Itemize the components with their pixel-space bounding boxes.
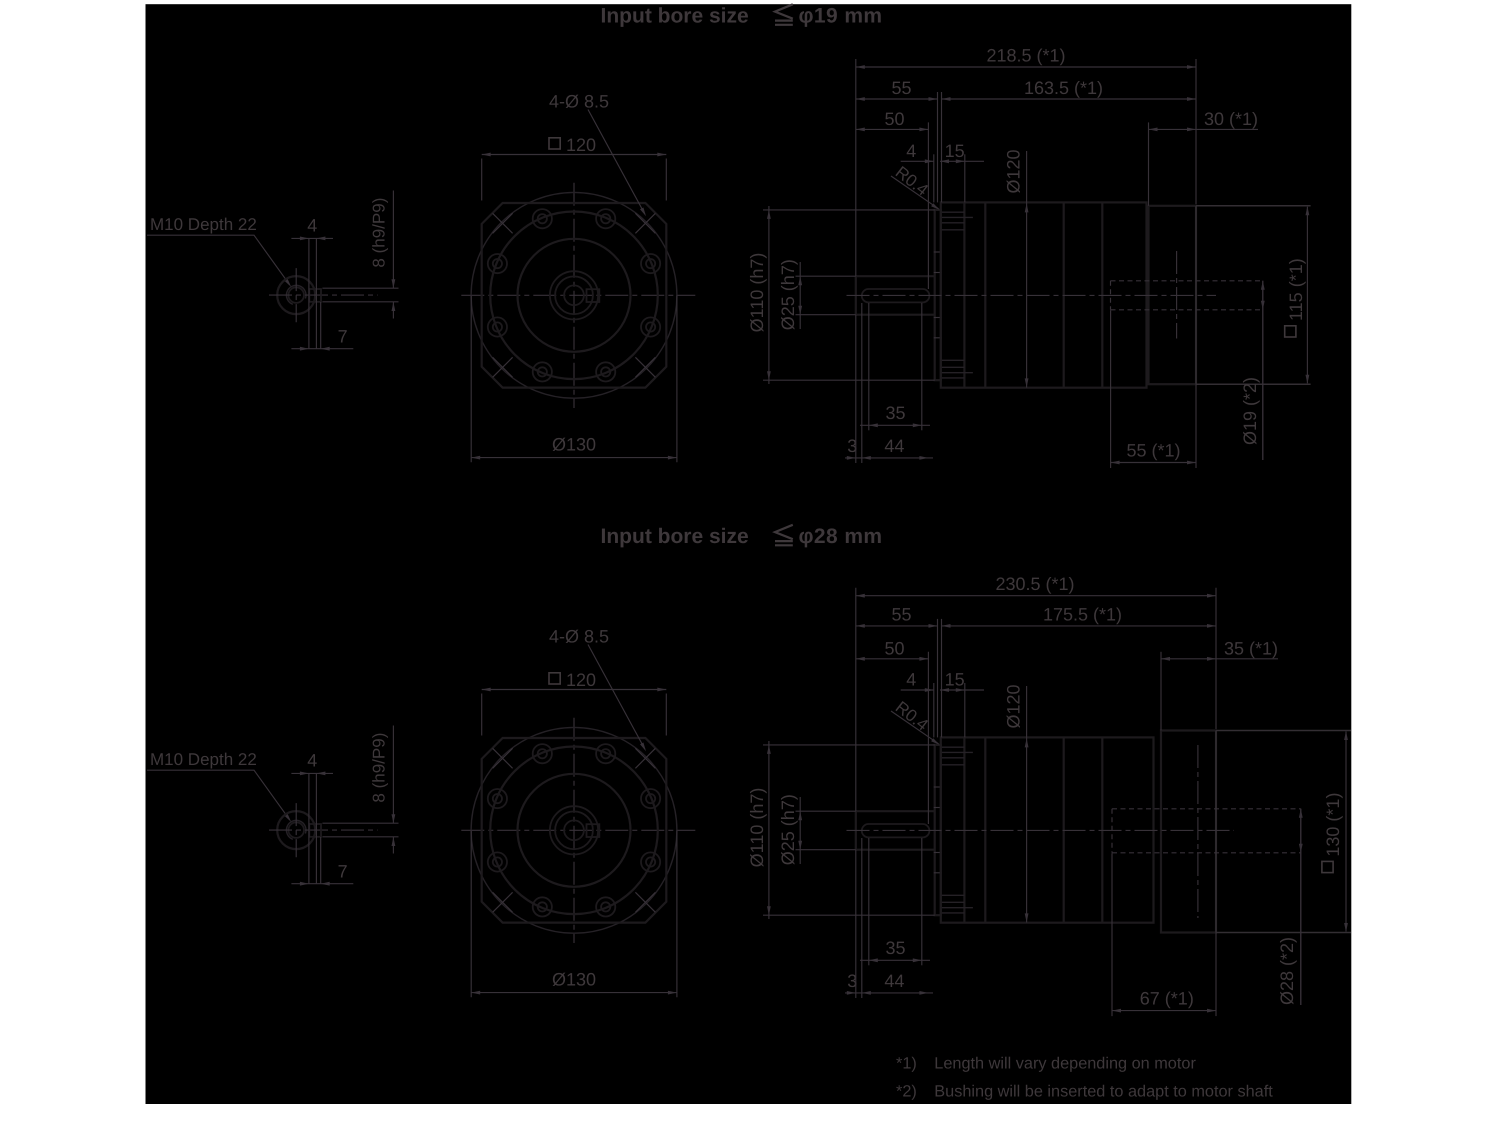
svg-text:Ø130: Ø130	[552, 435, 596, 455]
svg-text:Ø120: Ø120	[1003, 149, 1023, 193]
svg-text:Input bore size: Input bore size	[601, 525, 749, 548]
svg-text:Ø110 (h7): Ø110 (h7)	[747, 253, 767, 333]
svg-text:55: 55	[891, 78, 911, 98]
svg-text:35 (*1): 35 (*1)	[1224, 639, 1278, 659]
svg-text:M10 Depth 22: M10 Depth 22	[150, 215, 257, 234]
svg-text:44: 44	[884, 971, 904, 991]
svg-text:4: 4	[307, 751, 317, 771]
svg-text:55: 55	[891, 605, 911, 625]
svg-text:30 (*1): 30 (*1)	[1204, 109, 1258, 129]
svg-text:230.5 (*1): 230.5 (*1)	[995, 574, 1074, 594]
svg-text:Input bore size: Input bore size	[601, 5, 749, 28]
svg-text:4: 4	[906, 141, 916, 161]
svg-text:*2): *2)	[896, 1083, 917, 1101]
svg-text:Ø25 (h7): Ø25 (h7)	[778, 259, 798, 330]
svg-text:Ø130: Ø130	[552, 970, 596, 990]
svg-text:120: 120	[566, 135, 596, 155]
svg-text:35: 35	[885, 938, 905, 958]
svg-text:55 (*1): 55 (*1)	[1126, 441, 1180, 461]
svg-text:φ28 mm: φ28 mm	[799, 525, 883, 548]
svg-text:Ø120: Ø120	[1003, 684, 1023, 728]
svg-text:50: 50	[884, 639, 904, 659]
svg-text:50: 50	[884, 109, 904, 129]
svg-text:4-Ø 8.5: 4-Ø 8.5	[549, 626, 609, 646]
svg-text:M10 Depth 22: M10 Depth 22	[150, 750, 257, 769]
svg-text:7: 7	[338, 327, 348, 347]
svg-text:φ19 mm: φ19 mm	[799, 5, 883, 28]
svg-text:67 (*1): 67 (*1)	[1140, 989, 1194, 1009]
svg-text:4: 4	[307, 216, 317, 236]
svg-text:Ø25 (h7): Ø25 (h7)	[778, 794, 798, 865]
svg-text:8 (h9/P9): 8 (h9/P9)	[370, 733, 389, 803]
svg-text:4: 4	[906, 670, 916, 690]
svg-text:Length will vary depending on: Length will vary depending on motor	[934, 1055, 1196, 1073]
svg-text:4-Ø 8.5: 4-Ø 8.5	[549, 91, 609, 111]
svg-text:44: 44	[884, 436, 904, 456]
svg-text:35: 35	[885, 403, 905, 423]
svg-text:15: 15	[945, 670, 965, 690]
svg-text:15: 15	[945, 141, 965, 161]
svg-text:Bushing will be inserted to ad: Bushing will be inserted to adapt to mot…	[934, 1083, 1273, 1101]
svg-text:175.5 (*1): 175.5 (*1)	[1043, 605, 1122, 625]
svg-text:163.5 (*1): 163.5 (*1)	[1024, 78, 1103, 98]
svg-text:Ø19 (*2): Ø19 (*2)	[1240, 377, 1260, 445]
svg-text:115 (*1): 115 (*1)	[1286, 258, 1306, 321]
svg-text:*1): *1)	[896, 1055, 917, 1073]
svg-text:130 (*1): 130 (*1)	[1323, 793, 1343, 857]
svg-text:120: 120	[566, 670, 596, 690]
svg-text:Ø110 (h7): Ø110 (h7)	[747, 788, 767, 868]
svg-text:Ø28 (*2): Ø28 (*2)	[1277, 937, 1297, 1005]
svg-text:218.5 (*1): 218.5 (*1)	[986, 46, 1065, 66]
svg-text:7: 7	[338, 862, 348, 882]
svg-text:8 (h9/P9): 8 (h9/P9)	[370, 198, 389, 268]
